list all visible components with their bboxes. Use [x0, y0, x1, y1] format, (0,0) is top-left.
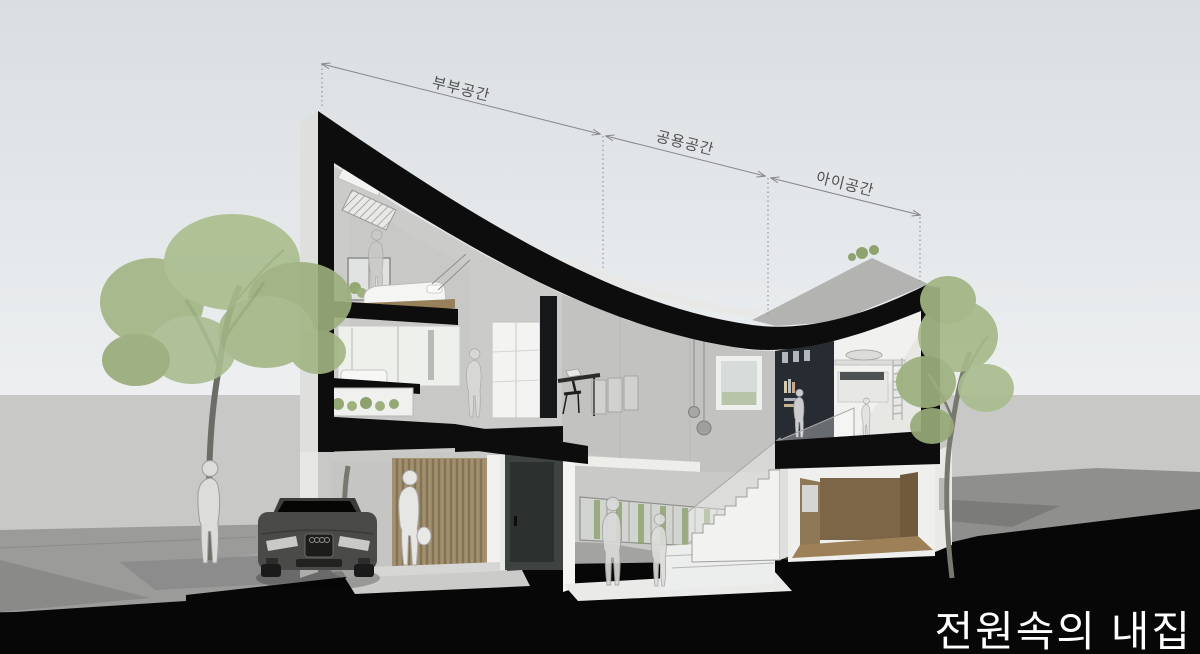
door-head-slab — [455, 426, 563, 452]
section-cut-wall — [540, 296, 557, 418]
planter-window — [323, 388, 413, 416]
car-wheel — [354, 564, 374, 577]
living-window — [716, 356, 762, 410]
fog-light — [266, 558, 278, 564]
car-windshield — [277, 501, 357, 513]
car-wheel — [261, 564, 281, 577]
wood-wall-back — [820, 478, 900, 540]
mirror — [428, 330, 434, 380]
entry-door — [510, 462, 554, 562]
bathroom — [338, 326, 460, 386]
car-grille — [305, 534, 333, 557]
wood-room-panel — [802, 485, 818, 512]
section-rendering-canvas: 부부공간 공용공간 아이공간 전원속의 내집 — [0, 0, 1200, 654]
entrance-jamb — [487, 455, 500, 568]
architectural-rendering: 부부공간 공용공간 아이공간 전원속의 내집 — [0, 0, 1200, 654]
car-intake — [296, 559, 342, 567]
sleeping-child — [846, 350, 882, 360]
loft-floor — [835, 360, 905, 365]
wood-room — [788, 458, 935, 562]
wood-wall-right — [900, 472, 918, 540]
door-handle — [514, 516, 517, 526]
entry-door-volume — [500, 442, 563, 570]
lounge-left-wall — [563, 455, 575, 592]
door-reveal — [500, 448, 505, 570]
fog-light — [358, 558, 370, 564]
window-greenery — [722, 392, 756, 405]
void-glass-railing — [592, 376, 638, 414]
project-title: 전원속의 내집 — [934, 608, 1192, 654]
cabinet-slot — [840, 372, 884, 380]
shopping-bag — [417, 527, 431, 545]
